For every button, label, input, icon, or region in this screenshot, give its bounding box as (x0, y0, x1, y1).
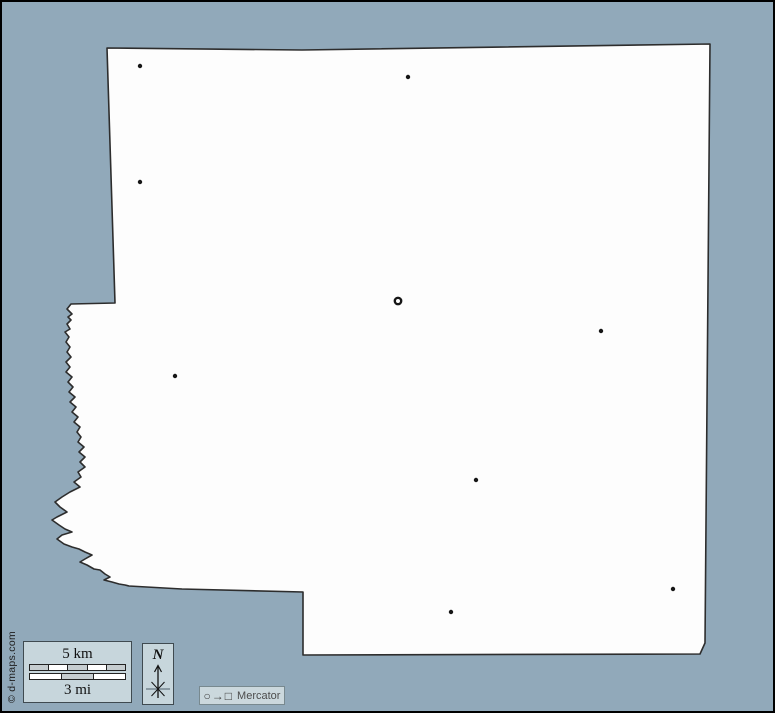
town-dot-marker (406, 75, 410, 79)
scale-segment (67, 665, 86, 670)
scale-segment (61, 674, 93, 679)
scale-segment (30, 674, 61, 679)
compass-north-label: N (153, 647, 164, 663)
scale-km-label: 5 km (62, 646, 92, 662)
projection-label: Mercator (237, 690, 280, 702)
scale-segment (87, 665, 106, 670)
map-canvas: © d-maps.com 5 km 3 mi N ○→□ Mercator (0, 0, 775, 713)
projection-chip: ○→□ Mercator (199, 686, 285, 705)
scale-segment (93, 674, 125, 679)
town-dot-marker (599, 329, 603, 333)
scale-bar: 5 km 3 mi (23, 641, 132, 703)
scale-segment (30, 665, 48, 670)
north-arrow-icon (145, 663, 171, 701)
map-svg (2, 2, 775, 713)
town-dot-marker (138, 180, 142, 184)
scale-mi-bar (29, 673, 126, 680)
town-dot-marker (138, 64, 142, 68)
scale-km-bar (29, 664, 126, 671)
town-dot-marker (671, 587, 675, 591)
city-ring-marker (395, 298, 401, 304)
town-dot-marker (449, 610, 453, 614)
scale-segment (106, 665, 125, 670)
copyright-text: © d-maps.com (6, 631, 18, 703)
scale-mi-label: 3 mi (64, 682, 91, 698)
county-outline-shape (52, 44, 710, 655)
town-dot-marker (173, 374, 177, 378)
circle-to-square-projection-icon: ○→□ (204, 689, 234, 703)
compass: N (142, 643, 174, 705)
scale-segment (48, 665, 67, 670)
town-dot-marker (474, 478, 478, 482)
